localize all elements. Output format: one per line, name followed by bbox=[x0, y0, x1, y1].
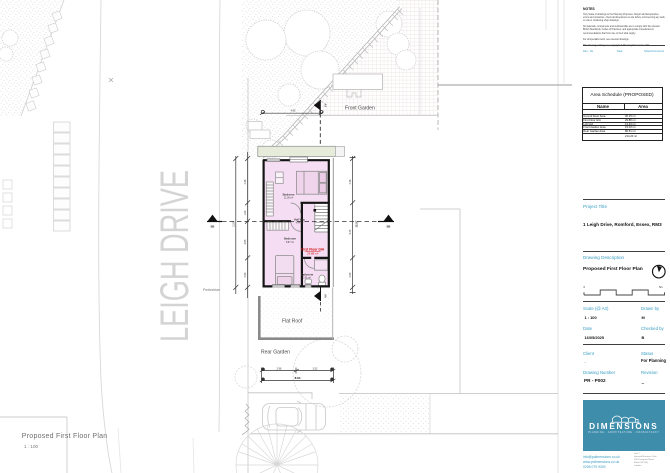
svg-text:2.95: 2.95 bbox=[349, 272, 352, 277]
svg-text:2.98: 2.98 bbox=[277, 368, 282, 371]
svg-text:8.67 m²: 8.67 m² bbox=[286, 241, 294, 244]
svg-text:5.45: 5.45 bbox=[349, 229, 352, 234]
svg-text:LEIGH DRIVE: LEIGH DRIVE bbox=[153, 170, 197, 342]
svg-text:1.80: 1.80 bbox=[244, 210, 247, 215]
svg-text:0: 0 bbox=[584, 285, 586, 289]
svg-text:5m: 5m bbox=[659, 285, 664, 289]
svg-text:Front Garden: Front Garden bbox=[345, 106, 375, 112]
svg-text:12.87: 12.87 bbox=[232, 220, 235, 227]
svg-text:11.36 m²: 11.36 m² bbox=[284, 197, 293, 200]
svg-text:3.65: 3.65 bbox=[244, 239, 247, 244]
svg-text:8.64: 8.64 bbox=[295, 376, 301, 380]
svg-text:4.38: 4.38 bbox=[244, 179, 247, 184]
svg-text:Rear Garden: Rear Garden bbox=[261, 350, 290, 356]
svg-text:2.95: 2.95 bbox=[244, 272, 247, 277]
svg-text:Pedestrian: Pedestrian bbox=[203, 288, 220, 292]
svg-text:Bathroom: Bathroom bbox=[301, 273, 314, 277]
svg-text:4.95: 4.95 bbox=[291, 110, 296, 113]
svg-text:4.38: 4.38 bbox=[349, 179, 352, 184]
svg-text:Hall Way: Hall Way bbox=[294, 217, 305, 221]
svg-text:2.61 m²: 2.61 m² bbox=[303, 277, 311, 280]
svg-text:12.87: 12.87 bbox=[354, 220, 358, 227]
svg-text:BB: BB bbox=[211, 225, 215, 229]
svg-text:BB: BB bbox=[387, 225, 391, 229]
svg-text:AA: AA bbox=[323, 103, 327, 107]
svg-text:AA: AA bbox=[324, 294, 328, 298]
svg-text:3.52: 3.52 bbox=[313, 368, 318, 371]
svg-text:29.88 m²: 29.88 m² bbox=[307, 252, 318, 256]
